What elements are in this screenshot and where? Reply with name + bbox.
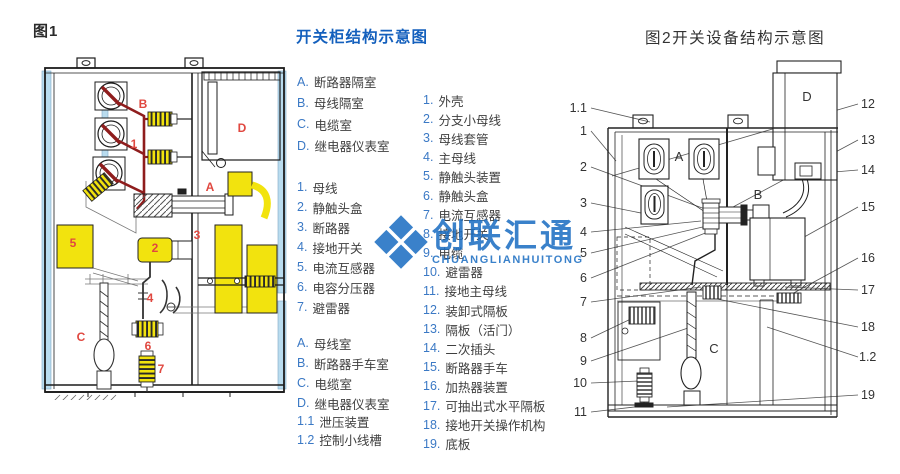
legend-item-text: 静触头盒	[438, 186, 488, 205]
fig2-callout-16: 16	[861, 251, 875, 265]
legend-item-key: 5.	[297, 260, 307, 274]
legend-item: 2.分支小母线	[423, 110, 545, 129]
legend-item-text: 静触头盒	[312, 198, 362, 217]
fig2-callout-13: 13	[861, 133, 875, 147]
legend-item-text: 继电器仪表室	[315, 394, 390, 413]
legend-item: D.继电器仪表室	[297, 135, 390, 156]
fig2-callout-1: 1	[580, 124, 587, 138]
legend-item: 13.隔板（活门）	[423, 320, 545, 339]
legend-item-text: 电流互感器	[312, 258, 375, 277]
legend-item: 15.断路器手车	[423, 358, 545, 377]
legend-item: 18.接地开关操作机构	[423, 415, 545, 434]
fig2-caption: 图2开关设备结构示意图	[645, 26, 825, 48]
legend-item: 7.避雷器	[297, 297, 375, 317]
legend-item: 1.2控制小线槽	[297, 431, 382, 450]
fig1-handcart-blocks	[215, 172, 277, 313]
legend-item-key: 18.	[423, 418, 440, 432]
fig2-callout-19: 19	[861, 388, 875, 402]
legend-item-key: C.	[297, 376, 310, 390]
legend-item-text: 泄压装置	[319, 412, 369, 431]
fig2-callout-15: 15	[861, 200, 875, 214]
fig2-callout-1-1: 1.1	[570, 101, 587, 115]
legend-item-key: D.	[297, 139, 310, 153]
fig2-callout-10: 10	[573, 376, 587, 390]
legend-item: 4.主母线	[423, 148, 545, 167]
legend-item-key: A.	[297, 336, 309, 350]
fig2-label-A: A	[675, 149, 684, 164]
legend-item-text: 断路器隔室	[314, 72, 377, 91]
legend-item-key: 17.	[423, 399, 440, 413]
page: { "fig1": { "caption": "图1", "labels": […	[0, 0, 900, 474]
legend-item-text: 电缆室	[315, 374, 353, 393]
fig1-contact-assembly	[134, 189, 233, 217]
legend-item-key: 4.	[423, 150, 433, 164]
legend-item-text: 二次插头	[445, 339, 495, 358]
legend-item-key: B.	[297, 96, 309, 110]
fig2-callouts-right: 12 13 14 15 16 17 18 1.2 19	[859, 97, 876, 402]
legend-item-text: 电容分压器	[312, 278, 375, 297]
legend-item-key: 14.	[423, 341, 440, 355]
legend-item: 2.静触头盒	[297, 197, 375, 217]
legend-item-text: 接地开关	[312, 238, 362, 257]
legend-item-text: 外壳	[438, 91, 463, 110]
legend-item-key: 3.	[423, 131, 433, 145]
legend-item-key: 15.	[423, 360, 440, 374]
fig1-label-4: 4	[147, 291, 154, 305]
fig2-breaker-handcart	[750, 163, 821, 286]
legend-item-text: 可抽出式水平隔板	[445, 396, 545, 415]
fig2-diagram: A B C D 1.1 1 2 3 4 5 6 7 8 9 10 11 12 1…	[555, 55, 885, 435]
legend-chamber-list-fig1: A.断路器隔室 B.母线隔室 C.电缆室 D.继电器仪表室	[297, 71, 390, 156]
legend-title: 开关柜结构示意图	[296, 25, 428, 47]
fig2-callout-1-2: 1.2	[859, 350, 876, 364]
watermark-text: 创联汇通	[432, 219, 584, 252]
legend-item-text: 继电器仪表室	[315, 136, 390, 155]
fig2-callout-11: 11	[574, 405, 587, 419]
legend-item-key: 2.	[423, 112, 433, 126]
fig1-ground-hatch	[54, 395, 116, 400]
legend-item: 5.电流互感器	[297, 257, 375, 277]
legend-item-key: B.	[297, 356, 309, 370]
fig2-callout-6: 6	[580, 271, 587, 285]
fig1-breaker-block	[138, 238, 192, 262]
legend-item: 16.加热器装置	[423, 377, 545, 396]
legend-item-key: 7.	[297, 300, 307, 314]
fig1-diagram: B D 1 A 5 3 2 4 C 6 7	[40, 55, 290, 400]
fig2-callout-7: 7	[580, 295, 587, 309]
legend-item-key: D.	[297, 396, 310, 410]
legend-extra-list: 1.1泄压装置 1.2控制小线槽	[297, 412, 382, 449]
fig1-branch-coils	[148, 112, 192, 164]
watermark-subtext: CHUANGLIANHUITONG	[432, 255, 584, 266]
legend-item-key: 16.	[423, 379, 440, 393]
fig2-callout-3: 3	[580, 196, 587, 210]
legend-item: 3.断路器	[297, 217, 375, 237]
legend-item-key: 1.	[297, 180, 307, 194]
legend-item-text: 控制小线槽	[319, 430, 382, 449]
watermark-logo-icon	[374, 215, 428, 269]
legend-item-key: 6.	[423, 189, 433, 203]
fig2-label-B: B	[754, 187, 763, 202]
legend-item-key: 2.	[297, 200, 307, 214]
fig1-label-7: 7	[158, 362, 165, 376]
legend-item-text: 避雷器	[312, 298, 350, 317]
legend-item-key: 1.2	[297, 433, 314, 447]
legend-item-key: 12.	[423, 303, 440, 317]
legend-item-text: 隔板（活门）	[445, 320, 520, 339]
legend-item: B.断路器手车室	[297, 353, 390, 373]
legend-item: 17.可抽出式水平隔板	[423, 396, 545, 415]
legend-item-text: 母线套管	[438, 129, 488, 148]
legend-part-list-fig1: 1.母线 2.静触头盒 3.断路器 4.接地开关 5.电流互感器 6.电容分压器…	[297, 177, 375, 317]
legend-item-text: 静触头装置	[438, 167, 501, 186]
legend-item-text: 装卸式隔板	[445, 301, 508, 320]
legend-item: 12.装卸式隔板	[423, 301, 545, 320]
watermark-text-block: 创联汇通 CHUANGLIANHUITONG	[432, 219, 584, 266]
legend-item: 4.接地开关	[297, 237, 375, 257]
legend-item: 14.二次插头	[423, 339, 545, 358]
legend-item-text: 母线室	[314, 334, 352, 353]
legend-item: A.断路器隔室	[297, 71, 390, 92]
legend-item-text: 主母线	[438, 148, 476, 167]
legend-item-text: 加热器装置	[445, 377, 508, 396]
legend-item-text: 断路器手车室	[314, 354, 389, 373]
fig1-cable	[94, 283, 114, 389]
fig2-callout-8: 8	[580, 331, 587, 345]
fig2-label-D: D	[802, 89, 811, 104]
fig2-callout-17: 17	[861, 283, 875, 297]
legend-item-text: 底板	[445, 434, 470, 453]
fig2-label-C: C	[709, 341, 718, 356]
legend-item: B.母线隔室	[297, 92, 390, 113]
fig1-earthing-switch	[160, 280, 180, 313]
fig1-label-B: B	[139, 97, 148, 111]
legend-item: 1.1泄压装置	[297, 412, 382, 431]
legend-item-text: 接地开关操作机构	[445, 415, 545, 434]
legend-item-key: 3.	[297, 220, 307, 234]
legend-item-key: 11.	[423, 284, 439, 298]
legend-item-key: 5.	[423, 169, 433, 183]
fig2-callout-2: 2	[580, 160, 587, 174]
legend-item: 1.母线	[297, 177, 375, 197]
legend-item: 3.母线套管	[423, 129, 545, 148]
legend-item: C.电缆室	[297, 373, 390, 393]
fig1-label-2: 2	[152, 241, 159, 255]
legend-item: A.母线室	[297, 333, 390, 353]
legend-item-key: 1.	[423, 93, 433, 107]
legend-item-text: 母线	[312, 178, 337, 197]
fig1-label-3: 3	[194, 228, 201, 242]
legend-item-text: 母线隔室	[314, 93, 364, 112]
fig2-callout-18: 18	[861, 320, 875, 334]
fig1-label-1: 1	[131, 137, 138, 151]
legend-item: C.电缆室	[297, 114, 390, 135]
legend-item: 6.电容分压器	[297, 277, 375, 297]
legend-item: D.继电器仪表室	[297, 393, 390, 413]
legend-item: 19.底板	[423, 434, 545, 453]
legend-item-key: 6.	[297, 280, 307, 294]
legend-item-text: 断路器手车	[445, 358, 508, 377]
legend-item-text: 分支小母线	[438, 110, 501, 129]
fig2-callout-12: 12	[861, 97, 875, 111]
legend-chamber-list-fig2: A.母线室 B.断路器手车室 C.电缆室 D.继电器仪表室	[297, 333, 390, 413]
legend-item-key: 1.1	[297, 414, 314, 428]
fig2-callout-9: 9	[580, 354, 587, 368]
fig1-relay-chamber	[202, 72, 280, 168]
legend-item-key: 19.	[423, 437, 440, 451]
legend-item-text: 断路器	[312, 218, 350, 237]
legend-item: 11.接地主母线	[423, 281, 545, 300]
fig1-label-6: 6	[145, 339, 152, 353]
legend-item-text: 接地主母线	[444, 281, 507, 300]
legend-item-text: 电缆室	[315, 115, 353, 134]
legend-item: 6.静触头盒	[423, 186, 545, 205]
legend-item-key: C.	[297, 117, 310, 131]
fig1-label-D: D	[238, 121, 247, 135]
fig1-label-C: C	[77, 330, 86, 344]
legend-item-key: 13.	[423, 322, 440, 336]
legend-item: 5.静触头装置	[423, 167, 545, 186]
legend-item-key: 4.	[297, 240, 307, 254]
watermark: 创联汇通 CHUANGLIANHUITONG	[374, 212, 584, 272]
fig2-callout-14: 14	[861, 163, 875, 177]
legend-item-key: A.	[297, 75, 309, 89]
legend-item: 1.外壳	[423, 91, 545, 110]
fig1-label-A: A	[206, 180, 215, 194]
fig1-label-5: 5	[70, 236, 77, 250]
fig1-caption: 图1	[33, 20, 58, 41]
fig2-relay-box	[758, 61, 841, 180]
